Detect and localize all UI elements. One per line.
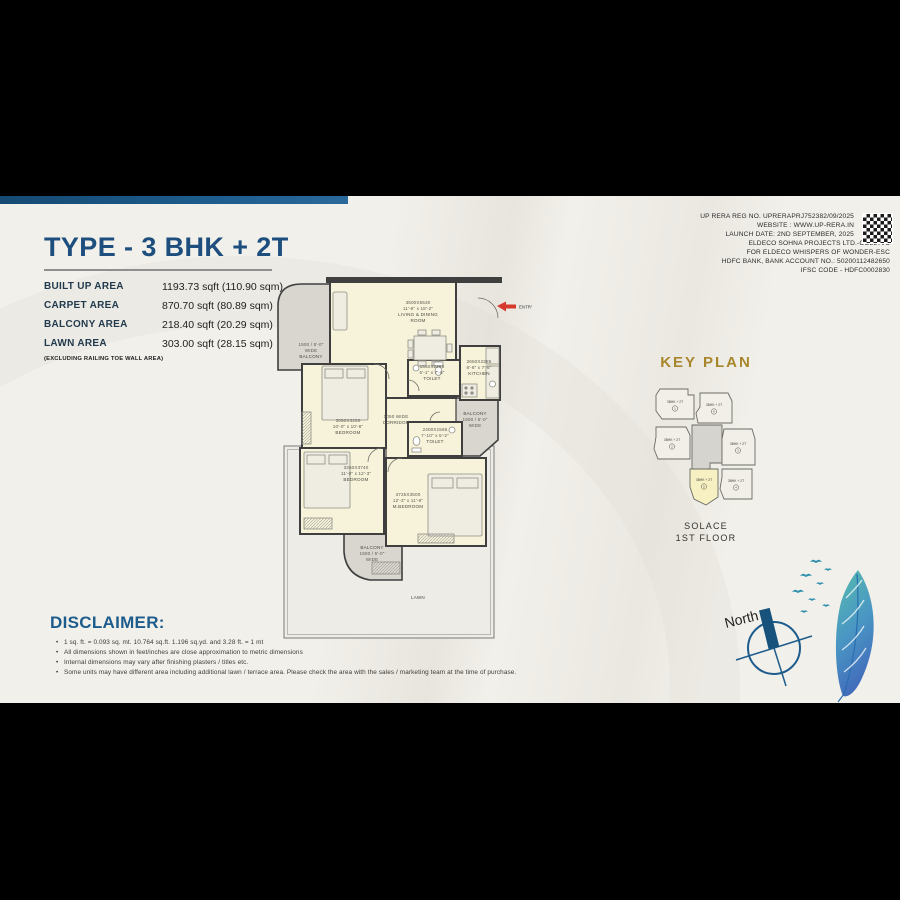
bedroom2-dim-ft: 11'-0" x 12'-3" xyxy=(341,471,371,476)
lawn-label: LAWN xyxy=(411,595,425,600)
balcony-b-label-2: 1500 / 5'-0" xyxy=(360,551,385,556)
sofa-icon xyxy=(333,292,347,330)
toilet2-dim-ft: 7'-10" x 5'-2" xyxy=(421,433,449,438)
kitchen-name: KITCHEN xyxy=(468,371,490,376)
area-value: 1193.73 sqft (110.90 sqm) xyxy=(162,281,283,293)
bedroom1-dim-ft: 10'-0" x 10'-8" xyxy=(333,424,364,429)
keyplan-core xyxy=(692,425,722,469)
mbedroom-dim-ft: 12'-3" x 11'-6" xyxy=(393,498,423,503)
table-row: BALCONY AREA 218.40 sqft (20.29 sqm) xyxy=(44,315,294,334)
title-rule xyxy=(44,269,272,271)
area-table: BUILT UP AREA 1193.73 sqft (110.90 sqm) … xyxy=(44,277,294,362)
north-label: North xyxy=(723,607,760,631)
rera-info-block: UP RERA REG NO. UPRERAPRJ752382/09/2025 … xyxy=(700,212,890,275)
keyplan-unit-label: 3BHK + 2T xyxy=(730,442,746,446)
kitchen-dim-mm: 2650X2285 xyxy=(467,359,492,364)
keyplan-title: KEY PLAN xyxy=(640,354,772,371)
mbedroom-name: M.BEDROOM xyxy=(393,504,424,509)
bedroom1-name: BEDROOM xyxy=(335,430,360,435)
keyplan-section: KEY PLAN 3BHK + 2T 1 3BHK + 2T 6 3BHK + … xyxy=(640,354,772,544)
area-label: BALCONY AREA xyxy=(44,319,162,330)
balcony-r-label-1: BALCONY xyxy=(463,411,486,416)
corridor-label-2: CORRIDOR xyxy=(383,420,410,425)
compass-needle xyxy=(759,608,779,649)
disclaimer-list: 1 sq. ft. = 0.093 sq. mt. 10.764 sq.ft. … xyxy=(56,638,790,678)
qr-code xyxy=(863,214,892,243)
toilet1-dim-ft: 5'-1" x 7'-6" xyxy=(419,370,444,375)
top-wall xyxy=(326,277,502,283)
rera-line: UP RERA REG NO. UPRERAPRJ752382/09/2025 xyxy=(700,212,854,221)
feather-icon xyxy=(792,560,874,702)
keyplan-caption: SOLACE 1ST FLOOR xyxy=(640,520,772,544)
rera-line: IFSC CODE - HDFC0002830 xyxy=(700,266,890,275)
keyplan-unit-4 xyxy=(720,469,752,499)
accent-bar xyxy=(0,196,348,204)
mbedroom-dim-mm: 3725X3500 xyxy=(396,492,421,497)
rera-line: WEBSITE : WWW.UP-RERA.IN xyxy=(700,221,854,230)
living-dim-ft: 11'-6" x 18'-2" xyxy=(403,306,433,311)
keyplan-unit-label: 3BHK + 2T xyxy=(706,403,722,407)
table-row: CARPET AREA 870.70 sqft (80.89 sqm) xyxy=(44,296,294,315)
disclaimer-section: DISCLAIMER: 1 sq. ft. = 0.093 sq. mt. 10… xyxy=(50,613,790,678)
area-label: LAWN AREA xyxy=(44,338,162,349)
corridor-label-1: 1050 WIDE xyxy=(384,414,409,419)
bedroom2-name: BEDROOM xyxy=(343,477,368,482)
bedroom1-dim-mm: 3050X3250 xyxy=(336,418,361,423)
entry-marker: ENTRY xyxy=(497,302,532,312)
birds-icon xyxy=(792,560,832,613)
living-name-2: ROOM xyxy=(410,318,425,323)
wardrobe-icon xyxy=(302,412,311,444)
balcony-b-label-1: BALCONY xyxy=(360,545,383,550)
bed-icon xyxy=(322,366,368,420)
living-name: LIVING & DINING xyxy=(398,312,438,317)
brochure-page: UP RERA REG NO. UPRERAPRJ752382/09/2025 … xyxy=(0,196,900,703)
balcony-tl-label-2: WIDE xyxy=(305,348,318,353)
rera-line: LAUNCH DATE: 2ND SEPTEMBER, 2025 xyxy=(700,230,854,239)
living-dim-mm: 3500X5530 xyxy=(406,300,431,305)
ledge-icon xyxy=(372,562,400,574)
area-label: CARPET AREA xyxy=(44,300,162,311)
disclaimer-bullet: Some units may have different area inclu… xyxy=(56,668,790,678)
keyplan-unit-label: 3BHK + 2T xyxy=(728,479,744,483)
disclaimer-bullet: All dimensions shown in feet/inches are … xyxy=(56,648,790,658)
rera-line: ELDECO SOHNA PROJECTS LTD.-COLL A/C xyxy=(700,239,890,248)
area-value: 870.70 sqft (80.89 sqm) xyxy=(162,300,273,312)
keyplan-unit-2 xyxy=(654,427,690,459)
screenshot-root: { "header": { "rera_lines": [ "UP RERA R… xyxy=(0,0,900,900)
entry-arrow-icon xyxy=(497,302,516,312)
toilet1-name: TOILET xyxy=(423,376,440,381)
area-value: 218.40 sqft (20.29 sqm) xyxy=(162,319,273,331)
keyplan-diagram: 3BHK + 2T 1 3BHK + 2T 6 3BHK + 2T 2 3BHK… xyxy=(648,379,764,509)
bed-icon xyxy=(428,474,482,536)
keyplan-unit-3 xyxy=(722,429,755,465)
table-row: LAWN AREA 303.00 sqft (28.15 sqm) xyxy=(44,334,294,353)
balcony-tl-label-3: BALCONY xyxy=(299,354,322,359)
disclaimer-bullet: 1 sq. ft. = 0.093 sq. mt. 10.764 sq.ft. … xyxy=(56,638,790,648)
toilet2-dim-mm: 2400X1565 xyxy=(423,427,448,432)
disclaimer-bullet: Internal dimensions may vary after finis… xyxy=(56,658,790,668)
page-title: TYPE - 3 BHK + 2T xyxy=(44,232,294,263)
rera-line: HDFC BANK, BANK ACCOUNT NO.: 50200112482… xyxy=(700,257,890,266)
area-note: (EXCLUDING RAILING TOE WALL AREA) xyxy=(44,356,294,362)
keyplan-unit-label: 3BHK + 2T xyxy=(664,438,680,442)
keyplan-unit-1 xyxy=(656,389,694,419)
area-label: BUILT UP AREA xyxy=(44,281,162,292)
feather-illustration xyxy=(780,554,890,703)
balcony-b-label-3: WIDE xyxy=(366,557,379,562)
keyplan-unit-label: 3BHK + 2T xyxy=(667,400,683,404)
keyplan-unit-label: 3BHK + 2T xyxy=(696,478,712,482)
balcony-r-label-2: 1500 / 5'-0" xyxy=(463,417,488,422)
keyplan-floor: 1ST FLOOR xyxy=(640,532,772,544)
unit-summary: TYPE - 3 BHK + 2T BUILT UP AREA 1193.73 … xyxy=(44,232,294,362)
toilet2-name: TOILET xyxy=(426,439,443,444)
keyplan-unit-6 xyxy=(696,393,732,423)
table-row: BUILT UP AREA 1193.73 sqft (110.90 sqm) xyxy=(44,277,294,296)
wardrobe-icon xyxy=(304,518,332,529)
balcony-tl-label-1: 1500 / 5'-0" xyxy=(299,342,324,347)
balcony-r-label-3: WIDE xyxy=(469,423,482,428)
toilet1-dim-mm: 1550X2285 xyxy=(420,364,445,369)
kitchen-dim-ft: 8'-8" x 7'-6" xyxy=(466,365,491,370)
disclaimer-title: DISCLAIMER: xyxy=(50,613,790,633)
wardrobe-icon xyxy=(418,534,454,543)
area-value: 303.00 sqft (28.15 sqm) xyxy=(162,338,273,350)
floorplan-drawing: ENTRY 3500X5530 11'-6" x 18'-2" LIVING &… xyxy=(268,262,532,647)
entry-label: ENTRY xyxy=(519,305,532,310)
bedroom2-dim-mm: 3350X3740 xyxy=(344,465,369,470)
keyplan-tower: SOLACE xyxy=(640,520,772,532)
rera-line: FOR ELDECO WHISPERS OF WONDER-ESC xyxy=(700,248,890,257)
